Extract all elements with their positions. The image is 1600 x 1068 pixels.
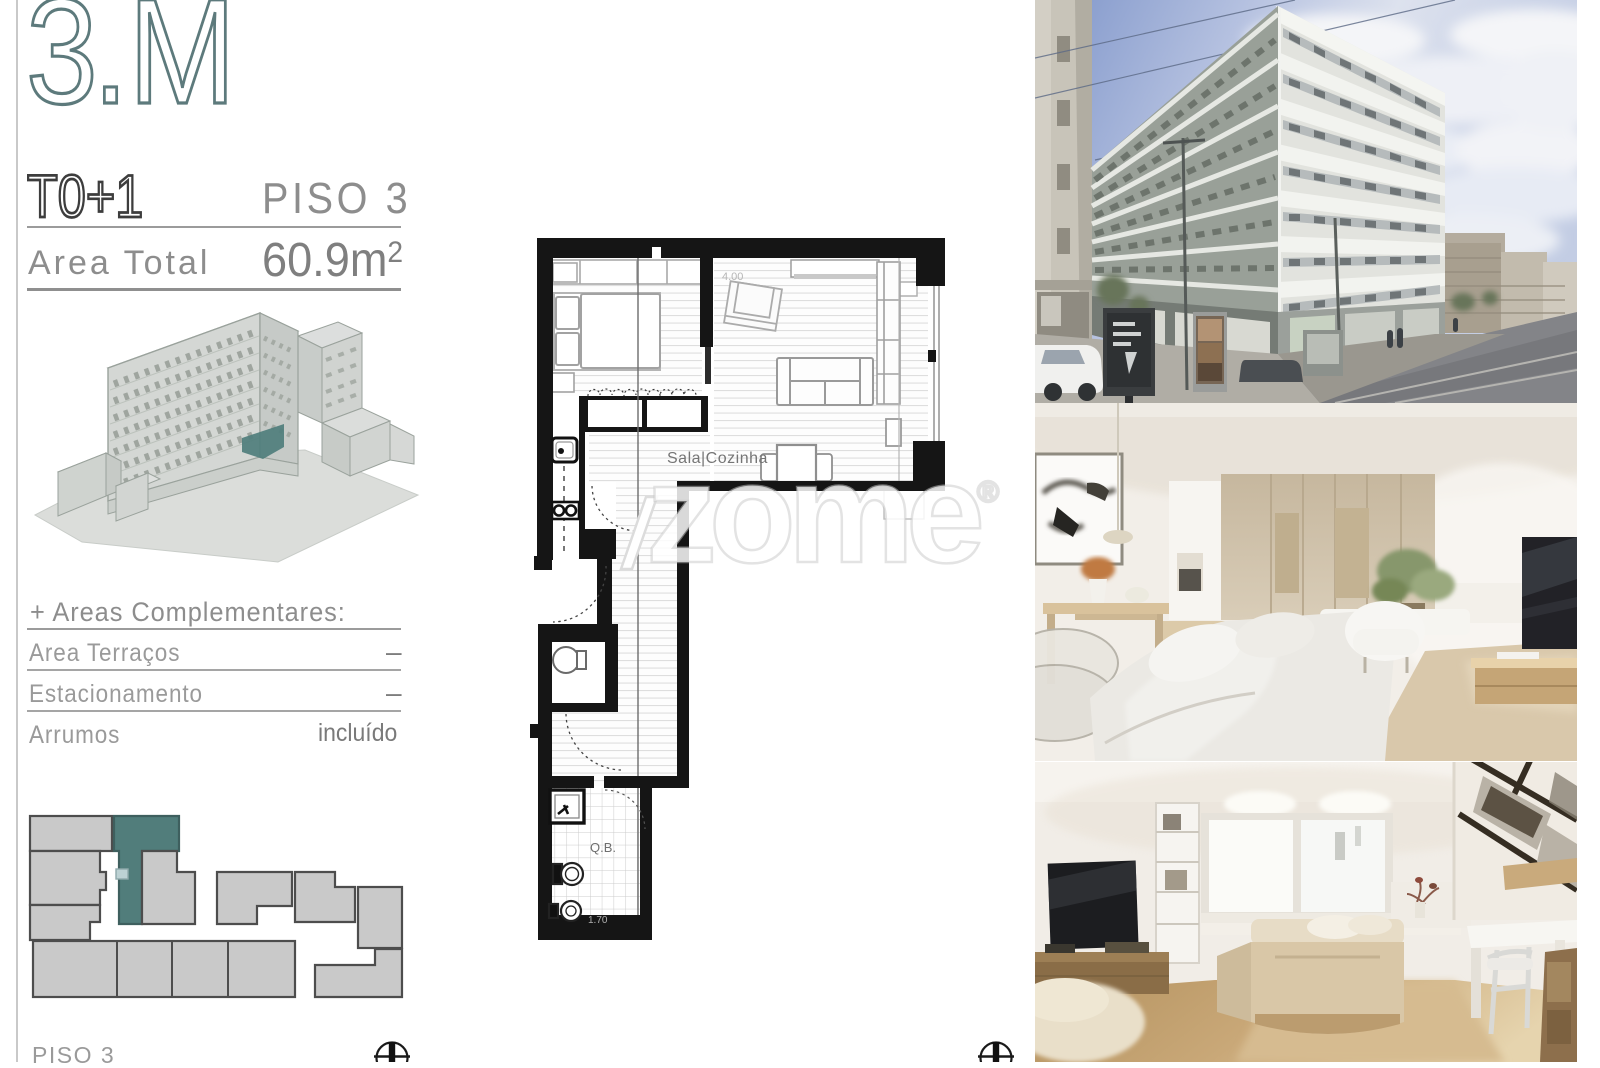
svg-text:Q.B.: Q.B. bbox=[590, 840, 616, 855]
svg-text:4.00: 4.00 bbox=[722, 271, 743, 283]
svg-text:1.70: 1.70 bbox=[588, 915, 608, 926]
